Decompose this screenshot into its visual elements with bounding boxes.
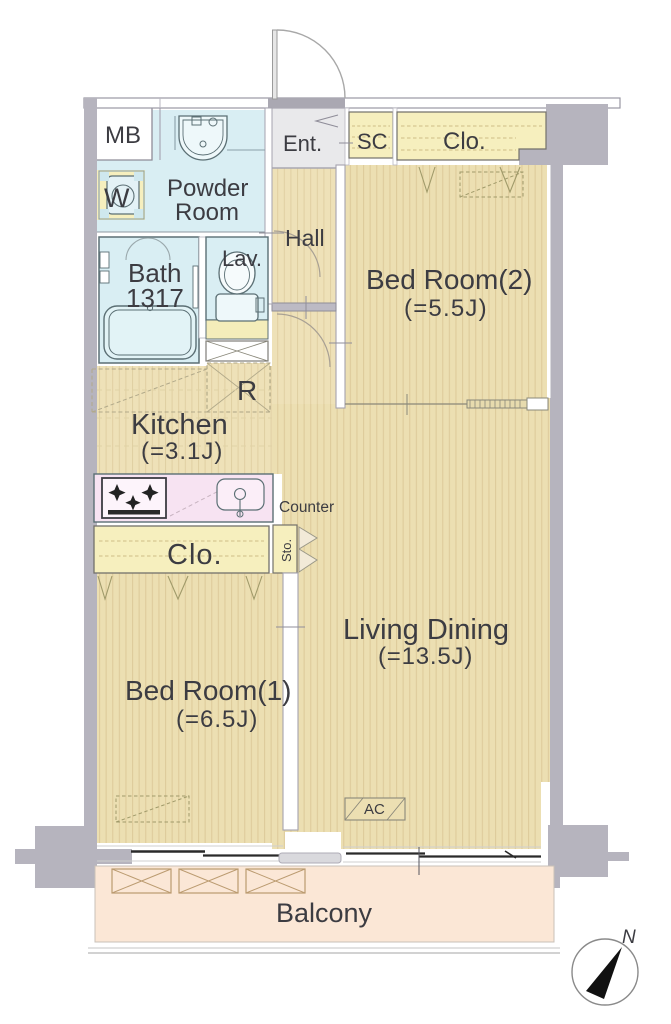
svg-text:W: W — [104, 183, 130, 213]
svg-text:Room: Room — [175, 199, 239, 226]
svg-text:R: R — [237, 375, 257, 406]
svg-text:Hall: Hall — [285, 225, 325, 251]
svg-text:Bed Room(2): Bed Room(2) — [366, 264, 533, 295]
svg-text:Ent.: Ent. — [283, 131, 322, 156]
svg-text:(=3.1J): (=3.1J) — [141, 438, 223, 465]
svg-text:Sto.: Sto. — [279, 539, 294, 562]
svg-text:Living Dining: Living Dining — [343, 614, 509, 646]
svg-text:(=6.5J): (=6.5J) — [176, 706, 258, 733]
svg-text:1317: 1317 — [126, 283, 184, 313]
svg-text:Balcony: Balcony — [276, 898, 373, 928]
svg-text:Kitchen: Kitchen — [131, 409, 228, 441]
svg-text:Counter: Counter — [279, 499, 334, 516]
svg-text:Clo.: Clo. — [443, 128, 486, 155]
svg-text:SC: SC — [357, 129, 388, 154]
svg-text:Clo.: Clo. — [167, 539, 223, 571]
svg-text:N: N — [622, 927, 636, 948]
svg-text:(=5.5J): (=5.5J) — [404, 295, 488, 322]
svg-text:Bed Room(1): Bed Room(1) — [125, 675, 292, 706]
svg-text:AC: AC — [364, 801, 385, 818]
svg-text:MB: MB — [105, 122, 141, 149]
svg-text:Powder: Powder — [167, 175, 248, 202]
svg-text:(=13.5J): (=13.5J) — [378, 643, 473, 670]
svg-text:Lav.: Lav. — [222, 246, 262, 271]
